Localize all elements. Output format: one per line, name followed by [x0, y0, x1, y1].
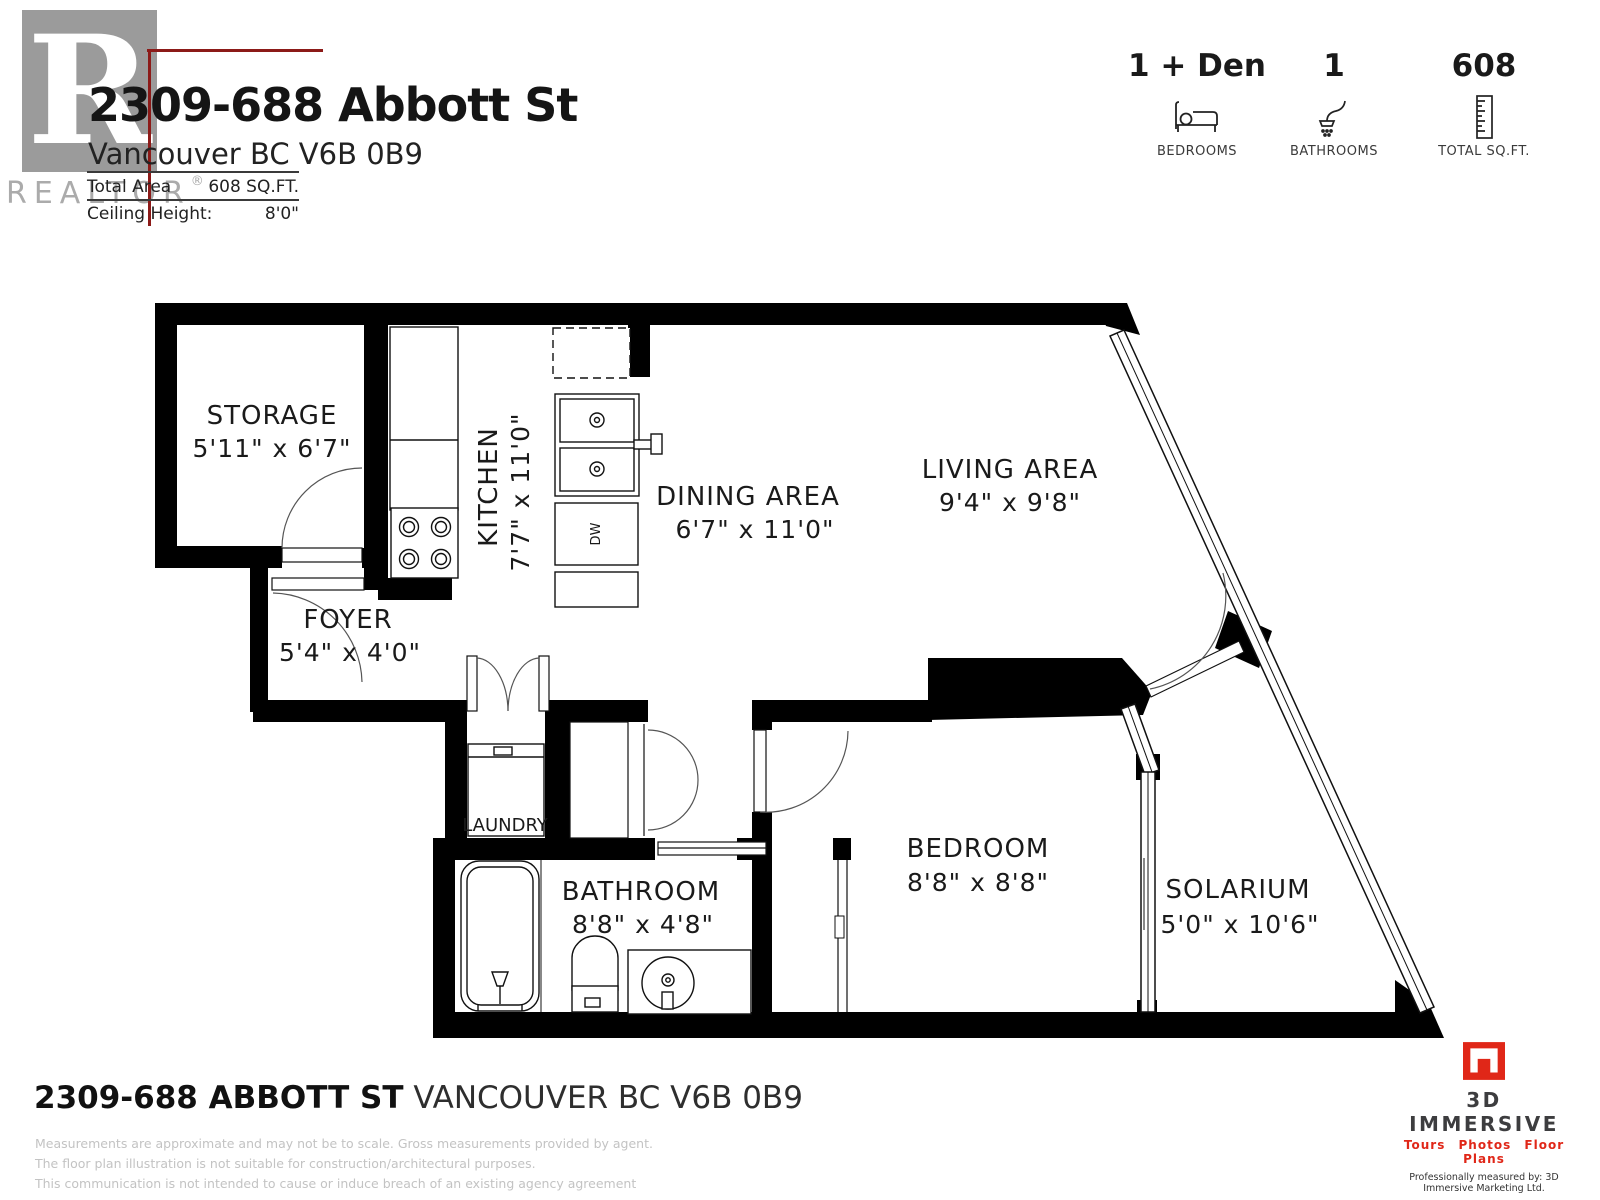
wall-storage-right — [364, 325, 388, 590]
label-bathroom: BATHROOM — [562, 877, 720, 907]
entry-door-leaf — [272, 578, 364, 590]
ruler-icon — [1414, 94, 1554, 140]
label-dishwasher: DW — [589, 522, 604, 545]
wall-closet-top — [545, 700, 648, 722]
dims-dining: 6'7" x 11'0" — [676, 515, 835, 544]
bedrooms-label: BEDROOMS — [1112, 144, 1282, 159]
stat-bathrooms: 1 BATHROOMS — [1264, 48, 1404, 159]
dims-bathroom: 8'8" x 4'8" — [572, 910, 714, 939]
total-area-label: Total Area — [87, 177, 171, 197]
bedroom-door-arc — [760, 731, 848, 812]
bathrooms-value: 1 — [1264, 48, 1404, 84]
wall-living-bedroom-slant — [928, 658, 1152, 720]
bedroom-door-leaf — [754, 730, 766, 812]
bed-icon — [1112, 94, 1282, 140]
footer-address-rest: VANCOUVER BC V6B 0B9 — [404, 1080, 803, 1116]
crop-mark-horizontal — [147, 49, 323, 52]
toilet-icon — [572, 936, 618, 1012]
laundry-bifold-arc-right — [508, 658, 539, 711]
listing-title: 2309-688 Abbott St — [88, 78, 577, 132]
label-laundry: LAUNDRY — [462, 815, 549, 836]
disclaimer-line: This communication is not intended to ca… — [35, 1174, 653, 1194]
total-area-row: Total Area 608 SQ.FT. — [87, 177, 299, 197]
closet-door-arc-bottom — [648, 780, 698, 830]
divider-line — [87, 171, 299, 173]
laundry-bifold-panel-left — [467, 656, 477, 711]
label-storage: STORAGE — [207, 401, 338, 431]
wall-bottom — [433, 1012, 1415, 1038]
label-solarium: SOLARIUM — [1165, 875, 1310, 905]
ceiling-height-row: Ceiling Height: 8'0" — [87, 204, 299, 224]
total-area-value: 608 SQ.FT. — [208, 177, 299, 197]
kitchen-counter-bottom — [555, 572, 638, 607]
wall-closet-stub-top — [833, 838, 851, 860]
window-diagonal-mullion — [1117, 333, 1427, 1010]
living-door-arc — [1150, 573, 1226, 689]
divider-line — [87, 199, 299, 201]
living-door-leaf — [1146, 641, 1244, 697]
wall-top — [155, 303, 1110, 325]
stat-sqft: 608 TOTAL SQ.FT. — [1414, 48, 1554, 159]
wall-foyer-left — [250, 546, 268, 712]
wall-left — [155, 303, 177, 568]
bedroom-closet — [835, 860, 847, 1012]
closet-door-arc-top — [648, 730, 698, 780]
dims-kitchen: 7'7" x 11'0" — [506, 413, 535, 572]
label-living: LIVING AREA — [922, 455, 1099, 485]
wall-top-right-corner — [1098, 303, 1140, 335]
branding-block: 3D IMMERSIVE Tours Photos Floor Plans Pr… — [1398, 1042, 1570, 1200]
footer-address: 2309-688 ABBOTT ST VANCOUVER BC V6B 0B9 — [34, 1080, 803, 1116]
label-bedroom: BEDROOM — [907, 834, 1050, 864]
bathrooms-label: BATHROOMS — [1264, 144, 1404, 159]
bathtub-icon — [461, 861, 539, 1011]
kitchen-counter-left — [390, 327, 458, 510]
dims-storage: 5'11" x 6'7" — [193, 434, 352, 463]
dims-bedroom: 8'8" x 8'8" — [907, 868, 1049, 897]
bedrooms-value: 1 + Den — [1112, 48, 1282, 84]
disclaimer-line: The floor plan illustration is not suita… — [35, 1154, 653, 1174]
wall-foyer-south — [253, 700, 467, 722]
fridge-icon — [553, 328, 630, 378]
brand-measured-by: Professionally measured by: 3D Immersive… — [1398, 1172, 1570, 1194]
laundry-bifold-arc-left — [477, 658, 508, 711]
wall-fridge-stub — [628, 325, 650, 377]
bathroom-sink-icon — [628, 950, 751, 1014]
sqft-value: 608 — [1414, 48, 1554, 84]
ceiling-height-label: Ceiling Height: — [87, 204, 212, 224]
laundry-bifold-panel-right — [539, 656, 549, 711]
wall-bathroom-top — [433, 838, 655, 860]
hall-closet-interior — [570, 722, 628, 838]
brand-tagline: Tours Photos Floor Plans — [1398, 1138, 1570, 1166]
stove-icon — [391, 508, 458, 578]
label-dining: DINING AREA — [656, 482, 840, 512]
dims-living: 9'4" x 9'8" — [939, 488, 1081, 517]
storage-door-arc — [282, 468, 362, 548]
disclaimer-line: Measurements are approximate and may not… — [35, 1134, 653, 1154]
label-kitchen: KITCHEN — [474, 427, 504, 547]
kitchen-sink-icon — [555, 394, 662, 496]
wall-kitchen-stub — [378, 578, 452, 600]
storage-door-leaf — [282, 548, 362, 562]
sqft-label: TOTAL SQ.FT. — [1414, 144, 1554, 159]
dims-solarium: 5'0" x 10'6" — [1161, 910, 1320, 939]
wall-bedroom-north — [770, 700, 932, 722]
brand-name: 3D IMMERSIVE — [1398, 1088, 1570, 1136]
label-foyer: FOYER — [303, 605, 392, 635]
shower-icon — [1264, 94, 1404, 140]
stat-bedrooms: 1 + Den BEDROOMS — [1112, 48, 1282, 159]
footer-address-bold: 2309-688 ABBOTT ST — [34, 1080, 404, 1116]
ceiling-height-value: 8'0" — [265, 204, 299, 224]
dims-foyer: 5'4" x 4'0" — [279, 638, 421, 667]
listing-city: Vancouver BC V6B 0B9 — [88, 137, 423, 171]
wall-bathroom-left — [433, 838, 455, 1038]
wall-closet-stub-bottom — [833, 1012, 851, 1038]
3d-immersive-logo-icon — [1398, 1042, 1570, 1084]
floor-plan-flyer: R REALTOR® 2309-688 Abbott St Vancouver … — [0, 0, 1600, 1200]
wall-hall-post — [752, 700, 772, 730]
disclaimer-text: Measurements are approximate and may not… — [35, 1134, 653, 1194]
